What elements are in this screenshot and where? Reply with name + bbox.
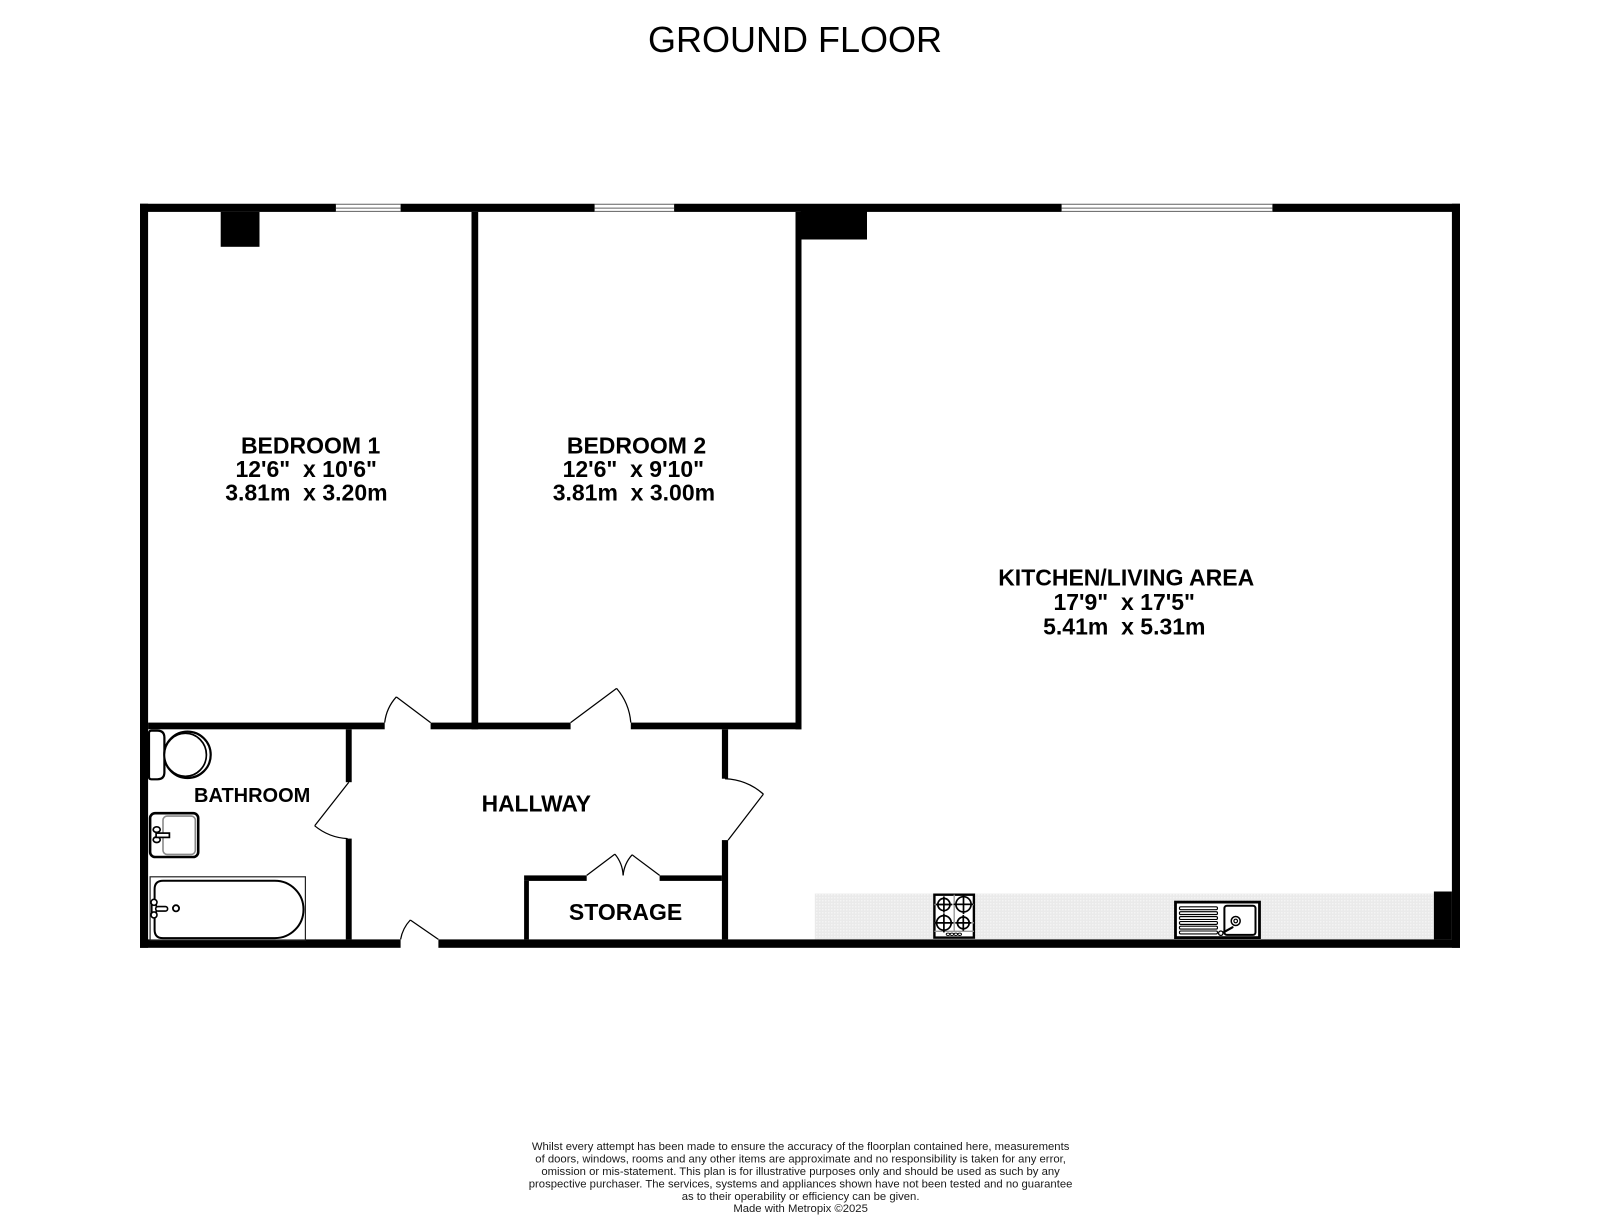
svg-text:omission or mis-statement. Thi: omission or mis-statement. This plan is … xyxy=(541,1166,1060,1178)
svg-text:3.81m x 3.00m: 3.81m x 3.00m xyxy=(553,479,715,505)
svg-text:BEDROOM 1: BEDROOM 1 xyxy=(241,433,381,459)
svg-text:BATHROOM: BATHROOM xyxy=(194,785,310,807)
svg-text:as to their operability or eff: as to their operability or efficiency ca… xyxy=(682,1191,920,1203)
svg-text:BEDROOM 2: BEDROOM 2 xyxy=(567,433,706,459)
svg-text:5.41m x 5.31m: 5.41m x 5.31m xyxy=(1043,613,1205,639)
svg-text:17'9" x 17'5": 17'9" x 17'5" xyxy=(1053,589,1194,615)
svg-text:KITCHEN/LIVING AREA: KITCHEN/LIVING AREA xyxy=(998,565,1254,591)
svg-text:HALLWAY: HALLWAY xyxy=(482,791,591,817)
svg-text:STORAGE: STORAGE xyxy=(569,899,682,925)
svg-text:Whilst every attempt has been: Whilst every attempt has been made to en… xyxy=(532,1141,1070,1153)
svg-text:3.81m x 3.20m: 3.81m x 3.20m xyxy=(225,479,387,505)
svg-text:12'6" x 10'6": 12'6" x 10'6" xyxy=(235,456,376,482)
svg-text:of doors, windows, rooms and a: of doors, windows, rooms and any other i… xyxy=(535,1153,1066,1165)
svg-text:12'6" x 9'10": 12'6" x 9'10" xyxy=(563,456,704,482)
svg-text:prospective purchaser. The ser: prospective purchaser. The services, sys… xyxy=(529,1179,1073,1191)
svg-text:GROUND FLOOR: GROUND FLOOR xyxy=(648,19,942,60)
svg-text:Made with Metropix ©2025: Made with Metropix ©2025 xyxy=(733,1203,868,1215)
